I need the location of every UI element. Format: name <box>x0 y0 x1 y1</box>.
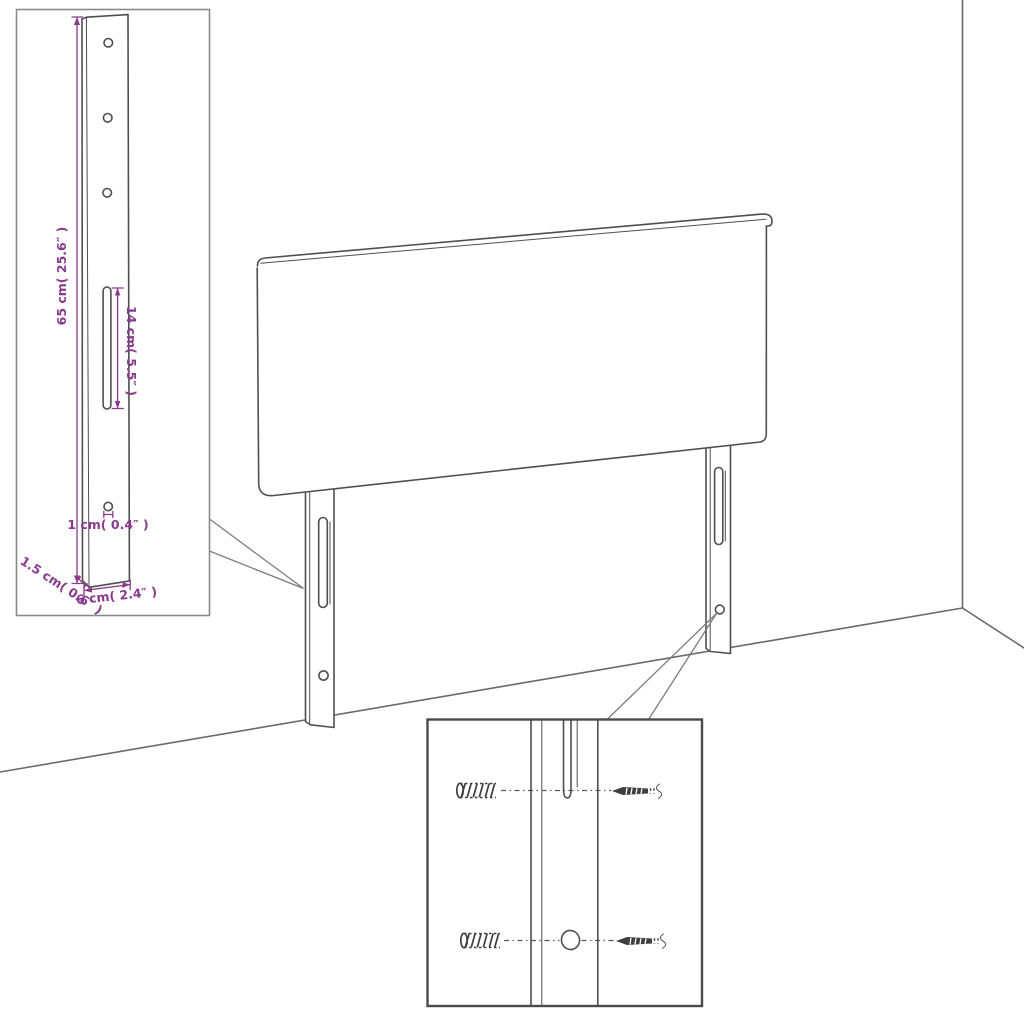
callout-line-lower <box>210 551 304 589</box>
assembly-diagram-page: 65 cm( 25.6″ ) 14 cm( 5.5″ ) 1 cm( 0.4″ … <box>0 0 1024 1024</box>
mounting-inset-frame <box>428 720 703 1007</box>
callout-line-upper <box>210 519 304 589</box>
mounting-detail-inset <box>428 720 703 1007</box>
dimension-label-slot: 14 cm( 5.5″ ) <box>124 306 139 396</box>
headboard-assembly-diagram: 65 cm( 25.6″ ) 14 cm( 5.5″ ) 1 cm( 0.4″ … <box>0 0 1024 1024</box>
right-leg-outline <box>706 438 731 654</box>
floor-line-right <box>963 608 1024 648</box>
leg-detail-inset: 65 cm( 25.6″ ) 14 cm( 5.5″ ) 1 cm( 0.4″ … <box>17 10 210 618</box>
leg-detail-callout-lines <box>210 519 304 589</box>
headboard-panel <box>257 214 772 496</box>
dimension-label-hole: 1 cm( 0.4″ ) <box>67 517 148 532</box>
headboard-panel-fill <box>257 217 766 496</box>
right-leg <box>706 438 731 654</box>
dimension-label-height: 65 cm( 25.6″ ) <box>54 227 69 326</box>
callout-line-right <box>649 614 717 720</box>
left-leg <box>306 480 335 728</box>
